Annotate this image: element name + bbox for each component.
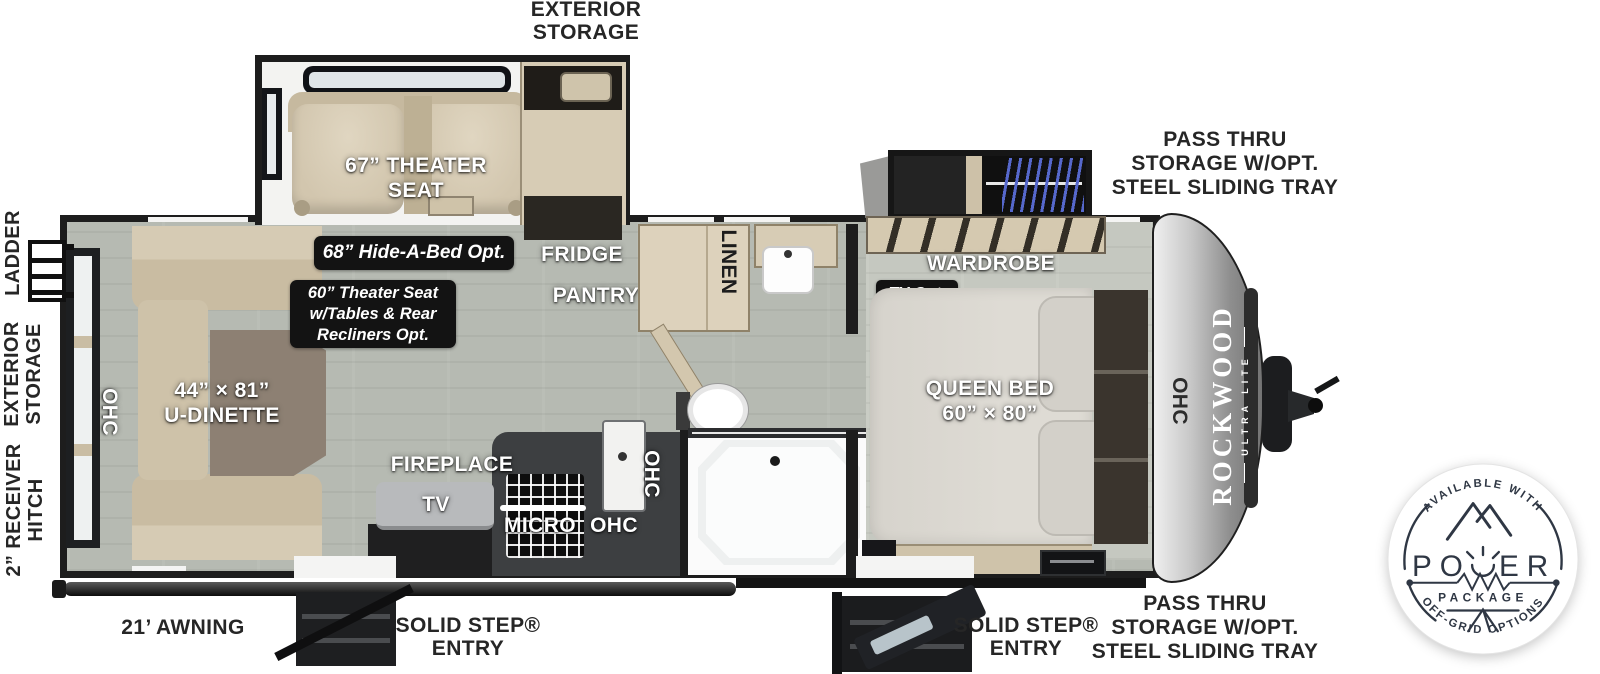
- theater-seat-label: 67” THEATER SEAT: [336, 153, 496, 203]
- shower: [688, 428, 870, 575]
- ohc-front-label: OHC: [1160, 361, 1200, 441]
- entry-steps-2-rail: [832, 592, 842, 674]
- dinette-seat-bottom: [132, 474, 322, 560]
- headboard: [1094, 290, 1148, 544]
- slideout-top-window: [303, 66, 511, 94]
- ladder-mount: [62, 292, 74, 298]
- pass-thru-bottom-label: PASS THRU STORAGE W/OPT. STEEL SLIDING T…: [1085, 592, 1325, 664]
- queen-bed-label: QUEEN BED 60” × 80”: [910, 376, 1070, 426]
- hitch-propane-cover: [1262, 356, 1292, 452]
- bath-faucet: [784, 250, 792, 258]
- hitch-handle: [1314, 376, 1340, 394]
- brand-subtitle: ULTRA LITE: [1240, 327, 1250, 483]
- brand-subtitle-text: ULTRA LITE: [1240, 354, 1250, 456]
- receiver-hitch-label: 2” RECEIVER HITCH: [2, 435, 48, 585]
- tv-label: TV: [396, 492, 476, 517]
- brand-rule: [1244, 463, 1245, 483]
- faucet: [618, 452, 627, 461]
- pass-thru-top-label: PASS THRU STORAGE W/OPT. STEEL SLIDING T…: [1105, 128, 1345, 200]
- exterior-storage-left-text: EXTERIOR STORAGE: [1, 321, 45, 426]
- badge-package-word: PACKAGE: [1438, 591, 1528, 605]
- u-dinette-label: 44” × 81” U-DINETTE: [122, 378, 322, 428]
- ohc-front-text: OHC: [1168, 377, 1193, 425]
- fridge-base: [524, 196, 622, 240]
- fridge-label: FRIDGE: [522, 242, 642, 267]
- micro-label: MICRO: [500, 513, 580, 538]
- rear-window-mullion: [74, 336, 92, 348]
- passthru-springs: [1002, 158, 1084, 212]
- entry-1-label: SOLID STEP® ENTRY: [388, 614, 548, 660]
- hitch-jack: [1308, 398, 1323, 413]
- ohc-kitchen-label: OHC: [584, 513, 644, 538]
- ladder-label-text: LADDER: [2, 210, 25, 296]
- power-word-right: ER: [1499, 550, 1556, 583]
- wardrobe-label: WARDROBE: [911, 251, 1071, 276]
- entry-door-1-opening: [294, 556, 396, 578]
- power-package-badge: AVAILABLE WITH PO ER PACKAGE OFF-GRID OP…: [1384, 460, 1582, 658]
- theater-option-badge: 60” Theater Seat w/Tables & Rear Recline…: [290, 280, 456, 348]
- receiver-hitch-text: 2” RECEIVER HITCH: [3, 443, 47, 576]
- ohc-kitchen-vertical: OHC: [632, 434, 672, 514]
- passthru-divider: [966, 156, 982, 214]
- entry-door-2-opening: [856, 556, 974, 578]
- stove-handle: [500, 505, 586, 511]
- linen-label-text: LINEN: [717, 230, 742, 295]
- linen-label: LINEN: [709, 222, 749, 302]
- window-slit: [148, 217, 248, 222]
- theater-armrest: [294, 200, 310, 216]
- hide-a-bed-text: 68” Hide-A-Bed Opt.: [323, 242, 506, 264]
- shower-drain: [770, 456, 780, 466]
- shower-door-rail: [688, 428, 870, 438]
- ohc-kitchen-vertical-text: OHC: [640, 450, 665, 498]
- fireplace-label: FIREPLACE: [382, 452, 522, 477]
- theater-option-text: 60” Theater Seat w/Tables & Rear Recline…: [308, 283, 438, 346]
- ohc-label-rear-text: OHC: [98, 388, 123, 436]
- slideout-side-window: [262, 88, 282, 180]
- awning-end-cap: [52, 580, 66, 598]
- hide-a-bed-badge: 68” Hide-A-Bed Opt.: [314, 236, 514, 270]
- fridge-cabinet-item: [560, 72, 612, 102]
- brand-rule: [1244, 327, 1245, 347]
- bath-bedroom-wall-lower: [846, 430, 858, 576]
- wardrobe-shelf: [866, 216, 1106, 254]
- bedroom-step-tray: [1040, 550, 1106, 576]
- ladder-label: LADDER: [1, 198, 25, 308]
- brand-logo: ROCKWOOD ULTRA LITE: [1206, 275, 1250, 535]
- window-slit: [132, 566, 186, 571]
- exterior-storage-left-label: EXTERIOR STORAGE: [0, 299, 46, 449]
- ladder-mount: [62, 244, 74, 250]
- ladder-icon: [28, 240, 66, 302]
- brand-name: ROCKWOOD: [1207, 304, 1238, 506]
- window-slit: [648, 217, 714, 222]
- frame-rail: [736, 578, 1146, 588]
- bath-bedroom-wall-upper: [846, 224, 858, 334]
- awning-label: 21’ AWNING: [103, 616, 263, 639]
- floorplan-canvas: OHC 44” × 81” U-DINETTE 67” THEATER SEAT…: [0, 0, 1600, 674]
- exterior-storage-top-label: EXTERIOR STORAGE: [506, 0, 666, 44]
- entry-2-label: SOLID STEP® ENTRY: [946, 614, 1106, 660]
- passthru-wedge: [860, 156, 890, 218]
